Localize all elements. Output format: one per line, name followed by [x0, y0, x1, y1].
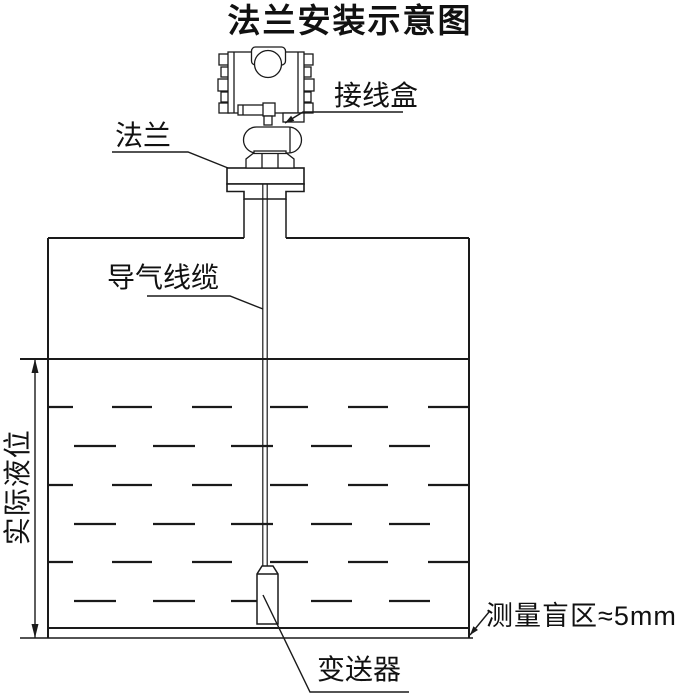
transmitter-head	[218, 47, 314, 168]
label-blind-zone: 测量盲区≈5mm	[486, 602, 677, 630]
flange-drawing	[227, 168, 304, 199]
label-flange: 法兰	[115, 121, 171, 150]
flange-installation-diagram: 法兰安装示意图 接线盒 法兰 导气线缆 实际液位 测量盲区≈5mm 变送器	[0, 0, 700, 700]
label-air-cable: 导气线缆	[107, 263, 219, 292]
cable-line	[263, 184, 267, 566]
tank-outline	[20, 238, 473, 638]
probe-drawing	[257, 566, 278, 624]
leader-lines	[112, 112, 489, 692]
label-actual-level: 实际液位	[3, 430, 32, 545]
label-junction-box: 接线盒	[334, 81, 418, 110]
tank-nozzle	[244, 199, 286, 238]
hex-nut	[246, 154, 294, 169]
process-body	[244, 127, 302, 153]
leader-air-cable	[147, 296, 263, 309]
leader-flange	[112, 152, 228, 168]
page-title: 法兰安装示意图	[0, 4, 700, 39]
top-cap-icon	[255, 51, 282, 78]
label-transmitter: 变送器	[317, 655, 401, 684]
